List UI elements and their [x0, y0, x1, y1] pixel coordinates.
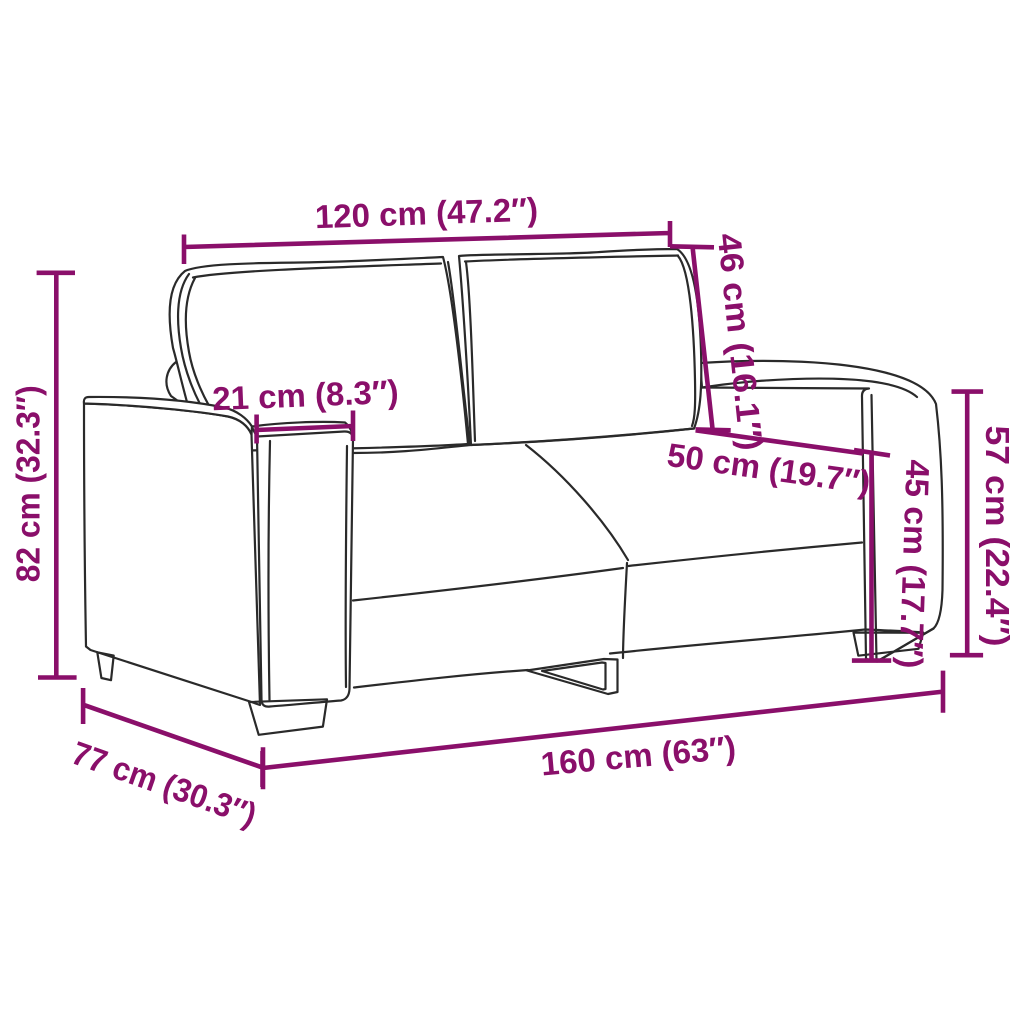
svg-text:45 cm (17.7″): 45 cm (17.7″) — [892, 459, 936, 669]
svg-text:160 cm (63″): 160 cm (63″) — [539, 729, 737, 783]
svg-text:82 cm (32.3″): 82 cm (32.3″) — [10, 385, 47, 582]
svg-text:21 cm (8.3″): 21 cm (8.3″) — [212, 373, 400, 417]
svg-text:57 cm (22.4″): 57 cm (22.4″) — [979, 426, 1016, 647]
svg-text:120 cm (47.2″): 120 cm (47.2″) — [314, 191, 538, 236]
svg-text:77 cm (30.3″): 77 cm (30.3″) — [67, 734, 261, 833]
svg-text:46 cm (16.1″): 46 cm (16.1″) — [711, 231, 771, 452]
